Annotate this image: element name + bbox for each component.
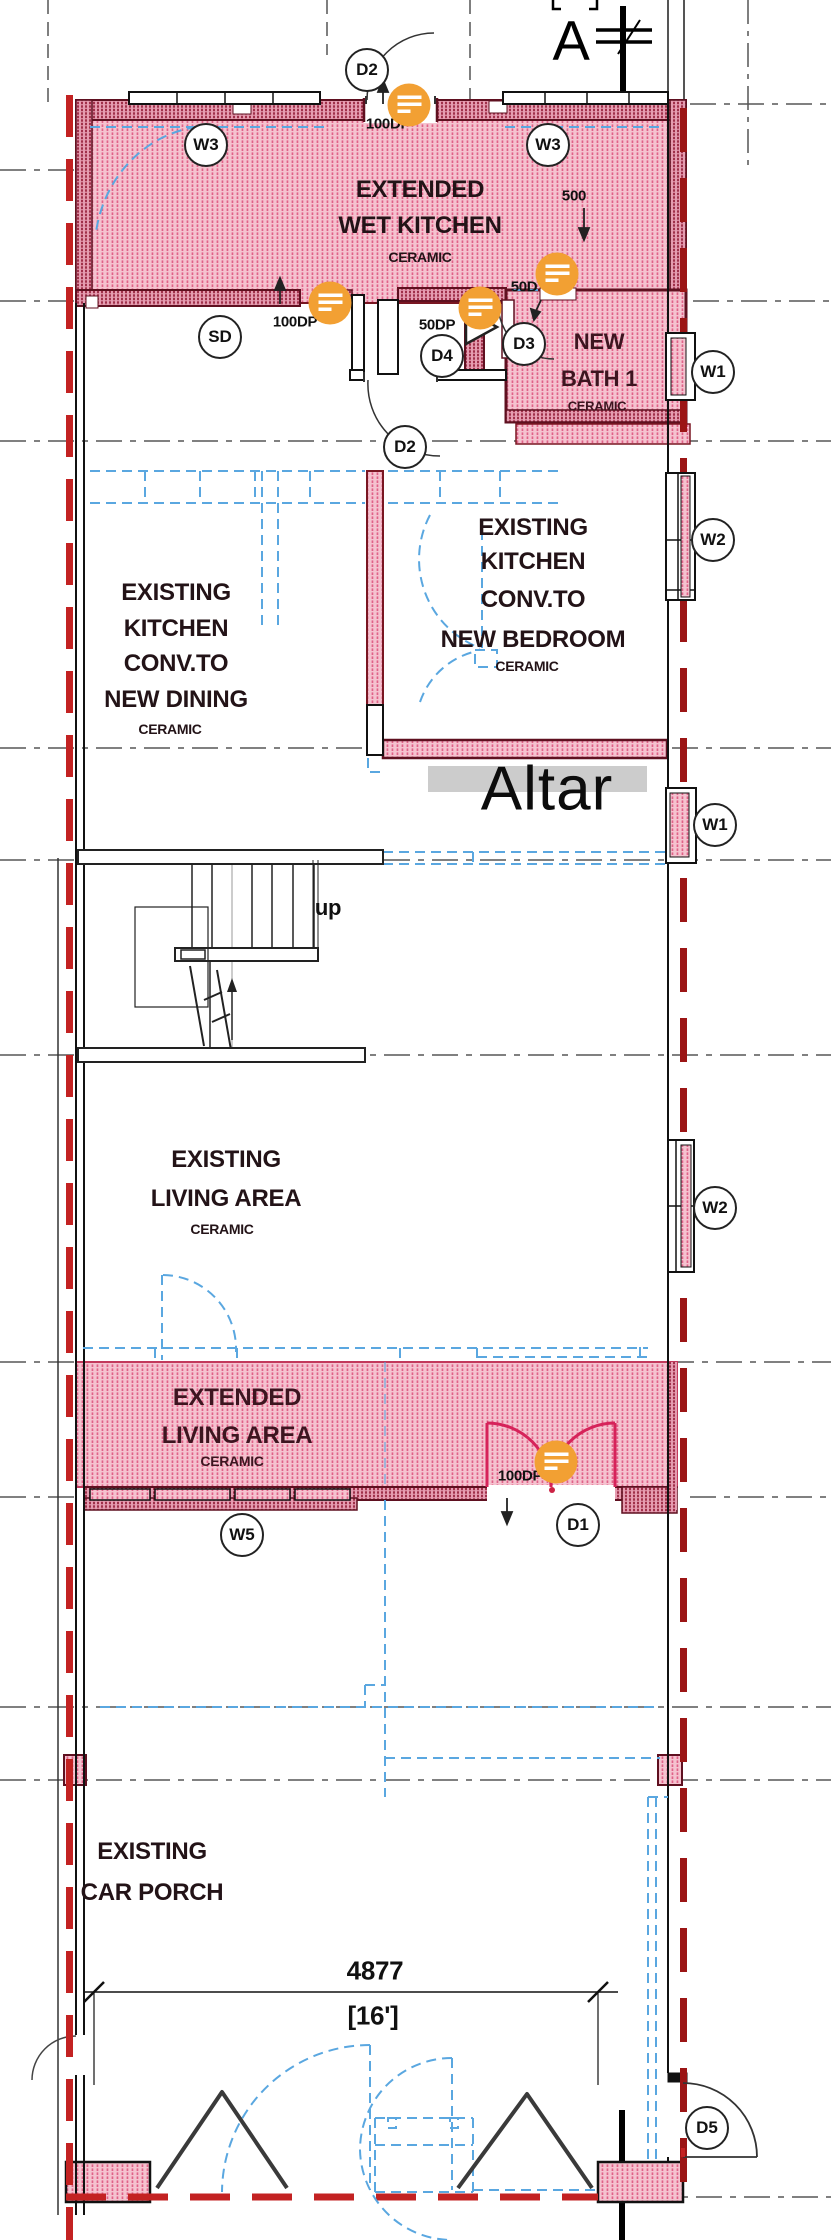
comment-lines-icon <box>545 265 569 284</box>
altar-label: Altar <box>481 754 613 825</box>
room-material: CERAMIC <box>200 1453 263 1469</box>
room-material: CERAMIC <box>568 399 627 414</box>
room-label-car-porch: EXISTING <box>97 1838 207 1866</box>
room-label-dining: CONV.TO <box>124 650 229 678</box>
tag-sliding-door-sd: SD <box>198 315 242 359</box>
tag-window-w1-altar: W1 <box>693 803 737 847</box>
stairs-up-label: up <box>315 895 341 921</box>
tag-window-w1-bath: W1 <box>691 350 735 394</box>
room-label-ext-living: EXTENDED <box>173 1384 301 1412</box>
room-label-bedroom: KITCHEN <box>481 548 586 576</box>
room-label-bath: NEW <box>574 329 624 355</box>
opening-label: 50DP <box>419 317 455 334</box>
room-material: CERAMIC <box>388 249 451 265</box>
floor-plan: EXTENDED WET KITCHEN CERAMIC NEW BATH 1 … <box>0 0 831 2240</box>
comment-lines-icon <box>318 294 342 313</box>
opening-label: 50D <box>511 279 538 296</box>
opening-label: 100DP <box>273 314 317 331</box>
tag-door-d2-top: D2 <box>345 48 389 92</box>
room-label-wet-kitchen: WET KITCHEN <box>338 212 501 240</box>
stairs <box>78 850 383 1062</box>
room-label-dining: KITCHEN <box>124 615 229 643</box>
room-label-bedroom: EXISTING <box>478 514 588 542</box>
comment-pin-icon[interactable] <box>535 1441 578 1484</box>
room-label-bath: BATH 1 <box>561 366 637 392</box>
opening-label: 500 <box>562 188 586 205</box>
room-material: CERAMIC <box>138 721 201 737</box>
room-label-living: EXISTING <box>171 1146 281 1174</box>
tag-door-d1: D1 <box>556 1503 600 1547</box>
tag-window-w3-left: W3 <box>184 123 228 167</box>
room-material: CERAMIC <box>190 1221 253 1237</box>
dimension-mm: 4877 <box>347 1956 404 1987</box>
comment-lines-icon <box>397 96 421 115</box>
tag-window-w3-right: W3 <box>526 123 570 167</box>
dimension-ft: [16'] <box>348 2001 399 2032</box>
room-label-bedroom: NEW BEDROOM <box>441 626 626 654</box>
comment-pin-icon[interactable] <box>388 84 431 127</box>
tag-window-w2-bedroom: W2 <box>691 518 735 562</box>
comment-pin-icon[interactable] <box>309 282 352 325</box>
tag-door-d3: D3 <box>502 322 546 366</box>
room-label-ext-living: LIVING AREA <box>162 1422 313 1450</box>
tag-window-w5: W5 <box>220 1513 264 1557</box>
tag-window-w2-living: W2 <box>693 1186 737 1230</box>
tag-door-d4: D4 <box>420 334 464 378</box>
room-label-bedroom: CONV.TO <box>481 586 586 614</box>
room-label-living: LIVING AREA <box>151 1185 302 1213</box>
tag-door-d2-bedroom: D2 <box>383 425 427 469</box>
section-letter: A <box>552 8 589 73</box>
comment-pin-icon[interactable] <box>536 253 579 296</box>
room-label-wet-kitchen: EXTENDED <box>356 176 484 204</box>
comment-pin-icon[interactable] <box>459 287 502 330</box>
room-material: CERAMIC <box>495 658 558 674</box>
dimension-lines <box>84 1982 618 2085</box>
room-label-dining: NEW DINING <box>104 686 248 714</box>
room-label-car-porch: CAR PORCH <box>81 1879 224 1907</box>
tag-door-d5: D5 <box>685 2106 729 2150</box>
room-label-dining: EXISTING <box>121 579 231 607</box>
comment-lines-icon <box>468 299 492 318</box>
comment-lines-icon <box>544 1453 568 1472</box>
